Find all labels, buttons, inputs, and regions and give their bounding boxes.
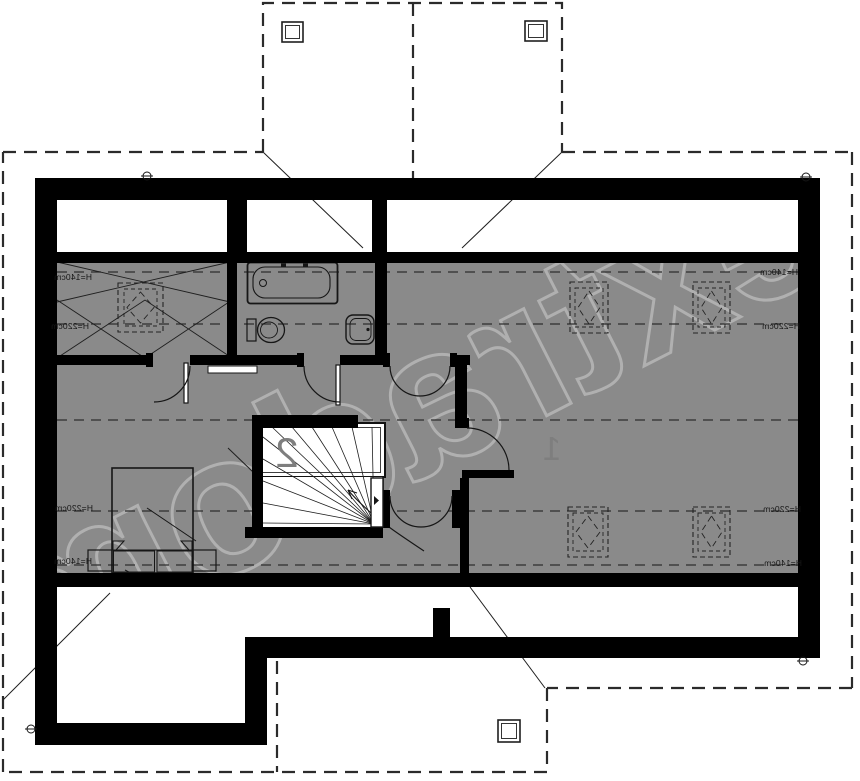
height-label: H=220cm (55, 503, 93, 513)
wall-west (35, 178, 57, 745)
wall-bath-east (375, 252, 387, 365)
height-label: H=220cm (763, 504, 801, 514)
knee-wall-north (57, 252, 798, 263)
room-number-staircase: 2 (275, 429, 298, 476)
height-label: H=220cm (762, 321, 800, 331)
wall-corridor-stub (455, 365, 467, 418)
height-label: H=140cm (760, 267, 798, 277)
wall-mid (57, 355, 147, 365)
height-label: H=220cm (51, 321, 89, 331)
wall-connector-a (227, 200, 247, 252)
survey-marker-icon (797, 657, 809, 665)
knee-wall-south (35, 573, 820, 587)
door-stairs (371, 478, 383, 527)
door-sliding (208, 366, 257, 373)
chimney-icon (282, 22, 303, 42)
wall-stair-north (252, 415, 358, 428)
wall-connector-b (372, 200, 387, 252)
wall-closet-bath-divider (227, 263, 237, 358)
wall-stub (433, 608, 450, 638)
attic-floor-plan-drawing: extradom (0, 0, 860, 781)
height-label: H=140cm (764, 558, 802, 568)
wall-mid (340, 355, 375, 365)
height-label: H=140cm (54, 272, 92, 282)
chimney-icon (525, 21, 547, 41)
room-number-main: 1 (543, 430, 561, 467)
wall-annex-south (35, 723, 267, 745)
wall-stair-west (252, 415, 263, 537)
floor-plan-sheet: extradom (0, 0, 860, 781)
wall-stair-south (245, 527, 383, 538)
chimney-icon (498, 720, 520, 742)
wall-north (35, 178, 820, 200)
wall-south (245, 637, 820, 658)
height-label: H=140cm (54, 556, 92, 566)
wall-l-corner (462, 470, 514, 478)
wall-mid (190, 355, 297, 365)
wall-corridor-east (460, 478, 469, 573)
